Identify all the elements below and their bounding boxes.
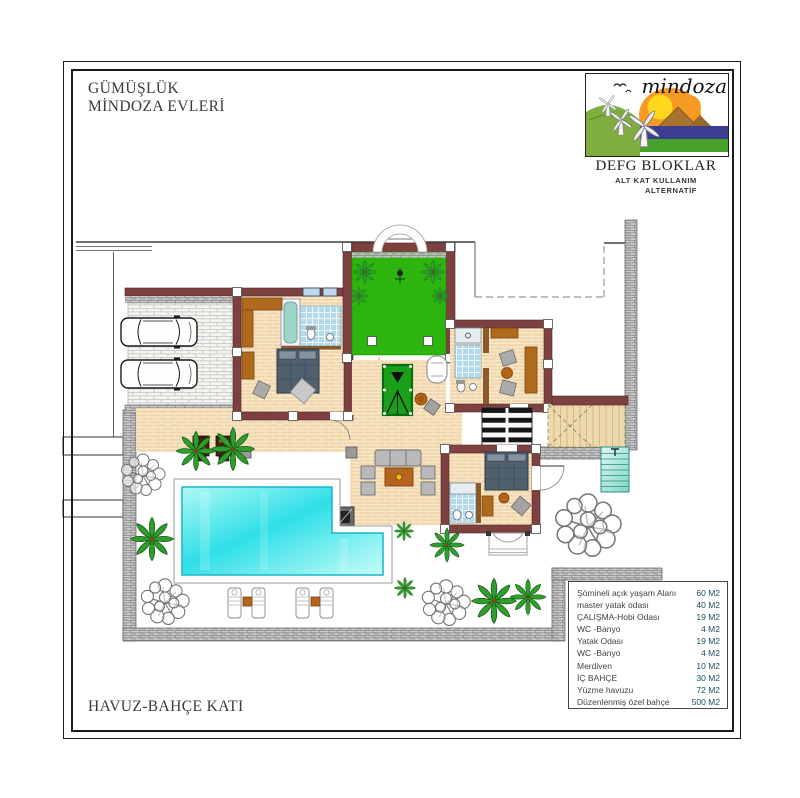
floor-label: HAVUZ-BAHÇE KATI	[88, 698, 244, 716]
legend-row: WC -Banyo4 M2	[577, 623, 720, 635]
block-subtitle-2: ALTERNATİF	[600, 186, 742, 195]
brand-name: mindoza	[641, 74, 727, 98]
legend-row: Düzenlenmiş özel bahçe500 M2	[577, 696, 720, 708]
block-subtitle-1: ALT KAT KULLANIM	[585, 176, 727, 185]
legend-row: Yatak Odası19 M2	[577, 635, 720, 647]
logo-art: mindoza	[586, 74, 728, 156]
legend-row: Merdiven10 M2	[577, 660, 720, 672]
legend-row: WC -Banyo4 M2	[577, 647, 720, 659]
project-name: MİNDOZA EVLERİ	[88, 98, 225, 116]
block-title: DEFG BLOKLAR	[585, 158, 727, 175]
legend-row: Yüzme havuzu72 M2	[577, 684, 720, 696]
legend-row: master yatak odası40 M2	[577, 599, 720, 611]
title-block: GÜMÜŞLÜK MİNDOZA EVLERİ	[88, 80, 225, 116]
legend-row: İÇ BAHÇE30 M2	[577, 672, 720, 684]
drawing-sheet: GÜMÜŞLÜK MİNDOZA EVLERİ	[0, 0, 800, 798]
legend-row: Şömineli açık yaşam Alanı60 M2	[577, 587, 720, 599]
logo: mindoza	[585, 73, 729, 157]
legend-rows: Şömineli açık yaşam Alanı60 M2master yat…	[577, 587, 720, 708]
area-legend: Şömineli açık yaşam Alanı60 M2master yat…	[568, 581, 728, 709]
legend-row: ÇALIŞMA-Hobi Odası19 M2	[577, 611, 720, 623]
bird-icon	[626, 90, 631, 92]
project-location: GÜMÜŞLÜK	[88, 80, 225, 98]
bird-icon	[614, 84, 626, 86]
